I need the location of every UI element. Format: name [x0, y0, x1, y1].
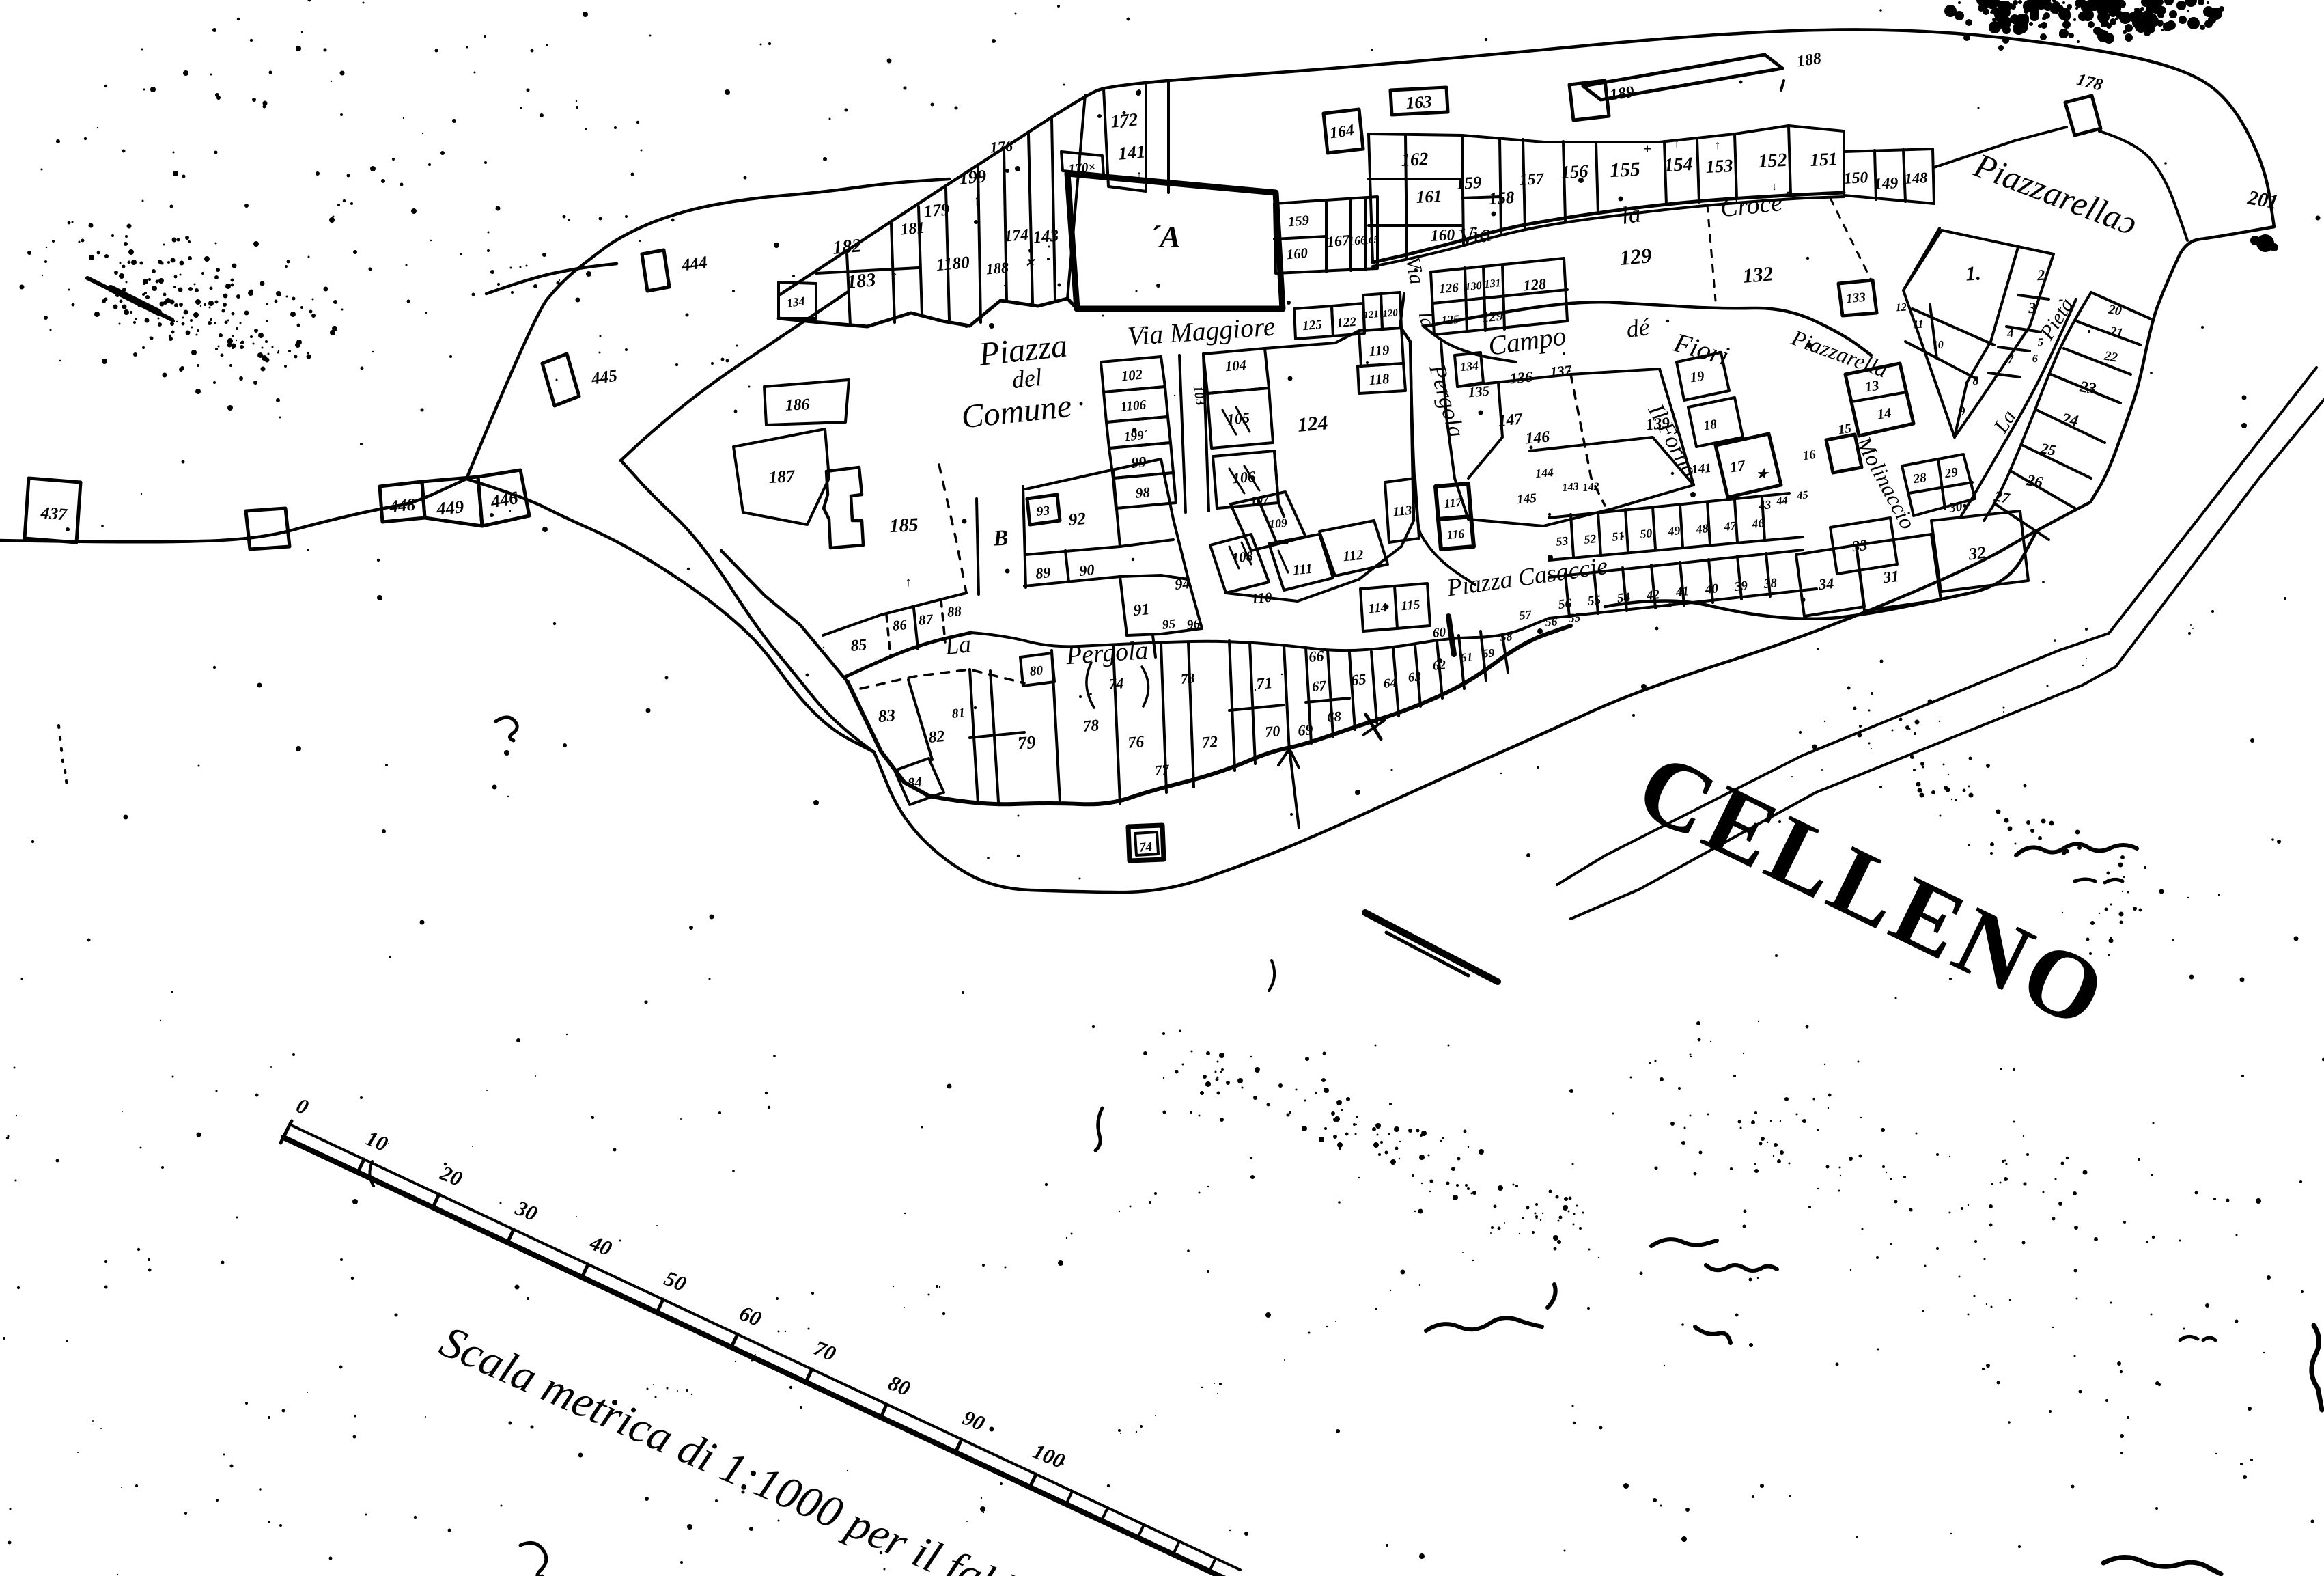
svg-text:162: 162: [1401, 148, 1429, 170]
svg-text:66: 66: [1308, 647, 1325, 665]
svg-text:59: 59: [1482, 646, 1496, 660]
svg-text:15: 15: [1837, 421, 1852, 438]
svg-text:98: 98: [1135, 485, 1151, 501]
svg-text:185: 185: [889, 514, 919, 537]
svg-text:164: 164: [1329, 122, 1356, 143]
svg-text:23: 23: [2077, 378, 2097, 398]
svg-text:129: 129: [1481, 309, 1504, 326]
svg-text:145: 145: [1516, 491, 1537, 507]
svg-text:24: 24: [2060, 410, 2080, 430]
svg-text:128: 128: [1523, 275, 1547, 294]
svg-text:64: 64: [1383, 676, 1397, 691]
svg-text:50: 50: [1640, 526, 1653, 541]
svg-text:la: la: [1620, 199, 1642, 230]
svg-text:26: 26: [2024, 471, 2044, 492]
svg-text:3: 3: [2027, 299, 2036, 317]
svg-text:157: 157: [1519, 170, 1545, 189]
svg-text:74: 74: [1108, 674, 1124, 693]
svg-text:139: 139: [1645, 415, 1671, 434]
svg-text:53: 53: [1556, 534, 1569, 549]
svg-text:136: 136: [1509, 368, 1534, 387]
svg-text:del: del: [1011, 363, 1044, 393]
svg-text:76: 76: [1127, 733, 1145, 752]
svg-text:49: 49: [1667, 523, 1681, 538]
svg-text:71: 71: [1255, 674, 1273, 693]
svg-text:113: 113: [1392, 503, 1413, 519]
svg-text:96: 96: [1186, 617, 1201, 633]
svg-text:8: 8: [1972, 374, 1979, 387]
svg-text:160: 160: [1286, 246, 1308, 263]
svg-text:+: +: [1643, 140, 1652, 157]
svg-text:5: 5: [2037, 335, 2043, 348]
svg-text:161: 161: [1416, 187, 1442, 207]
svg-text:21: 21: [2108, 324, 2125, 340]
svg-text:149: 149: [1873, 174, 1899, 193]
svg-text:159: 159: [1455, 174, 1483, 193]
svg-text:47: 47: [1723, 519, 1738, 534]
svg-text:2: 2: [2036, 266, 2045, 284]
svg-text:14: 14: [1876, 406, 1892, 423]
svg-text:✕: ✕: [1025, 256, 1035, 269]
svg-text:78: 78: [1082, 717, 1100, 736]
svg-text:38: 38: [1763, 576, 1778, 592]
svg-text:91: 91: [1132, 600, 1150, 620]
svg-text:109: 109: [1268, 516, 1287, 531]
svg-text:56: 56: [1558, 596, 1573, 612]
svg-text:153: 153: [1705, 155, 1733, 177]
svg-text:90: 90: [1078, 561, 1095, 579]
svg-text:Via: Via: [1457, 219, 1494, 251]
svg-text:156: 156: [1560, 161, 1589, 182]
svg-text:152: 152: [1758, 150, 1788, 172]
svg-text:116: 116: [1446, 527, 1465, 542]
svg-text:1.: 1.: [1965, 262, 1982, 285]
svg-text:↑: ↑: [973, 194, 980, 208]
svg-text:134: 134: [1459, 359, 1479, 374]
svg-text:22: 22: [2103, 348, 2119, 365]
svg-text:94: 94: [1174, 575, 1190, 593]
svg-text:437: 437: [40, 503, 68, 524]
svg-text:82: 82: [927, 728, 945, 747]
svg-text:41: 41: [1675, 584, 1690, 600]
svg-text:17: 17: [1728, 457, 1746, 476]
svg-text:88: 88: [947, 604, 962, 620]
svg-text:65: 65: [1350, 670, 1367, 689]
svg-text:187: 187: [768, 467, 796, 487]
svg-text:131: 131: [1484, 276, 1502, 290]
svg-text:122: 122: [1336, 315, 1357, 331]
svg-text:188: 188: [1796, 50, 1823, 71]
svg-text:114: 114: [1368, 600, 1388, 616]
svg-text:444: 444: [680, 253, 708, 275]
svg-text:176: 176: [990, 137, 1014, 156]
svg-text:143: 143: [1562, 480, 1580, 494]
svg-text:30•: 30•: [1948, 499, 1968, 516]
svg-text:141: 141: [1117, 141, 1146, 163]
svg-text:69: 69: [1297, 721, 1313, 739]
svg-text:93: 93: [1036, 503, 1050, 519]
svg-text:154: 154: [1664, 154, 1694, 176]
svg-text:20: 20: [2107, 302, 2123, 318]
svg-text:74: 74: [1138, 840, 1153, 855]
svg-text:79: 79: [1017, 732, 1037, 754]
svg-text:73: 73: [1180, 671, 1196, 687]
svg-text:188: 188: [985, 259, 1009, 278]
svg-text:67: 67: [1311, 678, 1328, 695]
svg-text:68: 68: [1326, 709, 1342, 725]
svg-text:4: 4: [2006, 327, 2014, 342]
svg-text:44: 44: [1775, 493, 1788, 508]
svg-text:1180: 1180: [936, 253, 971, 275]
svg-text:150: 150: [1843, 169, 1868, 188]
svg-text:28: 28: [1912, 471, 1927, 487]
svg-text:155: 155: [1610, 158, 1641, 182]
svg-text:132: 132: [1742, 263, 1774, 288]
svg-text:16: 16: [1802, 447, 1817, 464]
svg-text:48: 48: [1695, 521, 1709, 536]
svg-text:87: 87: [918, 612, 934, 628]
svg-text:189: 189: [1609, 83, 1636, 105]
svg-text:34: 34: [1817, 575, 1835, 593]
svg-text:445: 445: [589, 367, 618, 389]
svg-text:51: 51: [1612, 529, 1625, 544]
svg-text:85: 85: [850, 636, 867, 655]
svg-text:B: B: [992, 525, 1009, 551]
svg-text:119: 119: [1369, 343, 1390, 360]
svg-text:La: La: [943, 630, 972, 660]
svg-text:12: 12: [1895, 301, 1907, 314]
svg-text:★: ★: [1756, 467, 1769, 482]
svg-text:104: 104: [1224, 358, 1247, 375]
svg-text:70: 70: [1264, 722, 1280, 741]
svg-text:130: 130: [1465, 279, 1483, 293]
svg-text:9: 9: [1958, 404, 1965, 419]
svg-text:32: 32: [1967, 544, 1987, 564]
svg-text:125: 125: [1440, 312, 1459, 327]
svg-text:10: 10: [1932, 338, 1944, 352]
svg-text:199´: 199´: [1123, 428, 1149, 444]
svg-text:160: 160: [1430, 226, 1455, 245]
svg-text:63: 63: [1408, 669, 1422, 685]
svg-text:43: 43: [1758, 497, 1772, 512]
svg-text:81: 81: [951, 706, 966, 721]
svg-text:137: 137: [1550, 363, 1573, 381]
svg-text:151: 151: [1810, 148, 1838, 170]
svg-text:62: 62: [1432, 658, 1446, 674]
svg-text:107: 107: [1250, 493, 1270, 508]
svg-text:55: 55: [1587, 593, 1602, 609]
svg-text:18: 18: [1703, 417, 1718, 434]
svg-text:449: 449: [435, 496, 464, 519]
svg-text:84: 84: [907, 775, 923, 791]
svg-text:52: 52: [1584, 531, 1597, 547]
svg-text:121: 121: [1363, 309, 1380, 321]
svg-text:125: 125: [1302, 318, 1323, 333]
svg-text:80: 80: [1029, 663, 1044, 679]
svg-text:126: 126: [1438, 281, 1459, 296]
svg-text:1106: 1106: [1120, 398, 1147, 414]
svg-text:89: 89: [1035, 564, 1051, 582]
svg-text:199: 199: [958, 165, 987, 188]
svg-text:111: 111: [1292, 562, 1313, 578]
svg-text:83: 83: [878, 706, 896, 726]
svg-text:19: 19: [1689, 369, 1705, 386]
svg-text:133: 133: [1845, 290, 1866, 306]
svg-text:31: 31: [1881, 568, 1900, 587]
svg-text:172: 172: [1110, 109, 1138, 131]
svg-text:186: 186: [785, 396, 810, 415]
svg-text:159: 159: [1287, 213, 1310, 230]
svg-text:55: 55: [1568, 610, 1582, 624]
svg-text:142: 142: [1582, 480, 1600, 494]
svg-text:148: 148: [1904, 169, 1928, 187]
svg-text:181: 181: [900, 219, 926, 239]
svg-text:118: 118: [1369, 372, 1390, 389]
svg-text:183: 183: [846, 269, 877, 293]
svg-text:72: 72: [1201, 733, 1218, 752]
svg-text:120: 120: [1382, 307, 1399, 320]
svg-text:158: 158: [1488, 189, 1515, 208]
svg-text:134: 134: [786, 294, 806, 310]
svg-text:39: 39: [1733, 579, 1749, 594]
svg-text:182: 182: [832, 235, 863, 259]
svg-text:↑: ↑: [891, 269, 898, 284]
svg-text:174: 174: [1004, 226, 1030, 246]
svg-text:147: 147: [1498, 410, 1524, 430]
svg-text:86: 86: [892, 618, 908, 634]
svg-text:448: 448: [388, 495, 416, 516]
svg-text:95: 95: [1162, 617, 1176, 633]
svg-text:57: 57: [1519, 607, 1533, 622]
svg-text:179: 179: [923, 200, 950, 221]
svg-text:40: 40: [1704, 581, 1720, 597]
svg-text:29: 29: [1943, 465, 1959, 482]
svg-text:102: 102: [1121, 368, 1143, 385]
svg-text:61: 61: [1460, 650, 1473, 664]
svg-text:↑: ↑: [1715, 138, 1721, 152]
svg-text:58: 58: [1500, 629, 1513, 644]
svg-text:144: 144: [1535, 465, 1554, 480]
svg-text:135: 135: [1468, 384, 1490, 401]
svg-text:46: 46: [1751, 516, 1765, 531]
svg-text:45: 45: [1795, 488, 1808, 502]
svg-text:124: 124: [1297, 412, 1329, 437]
svg-text:129: 129: [1619, 243, 1652, 270]
svg-text:↑: ↑: [905, 575, 912, 590]
svg-text:Pergola: Pergola: [1065, 636, 1149, 670]
svg-text:143: 143: [1032, 226, 1059, 247]
svg-text:141: 141: [1691, 461, 1712, 477]
svg-text:163: 163: [1405, 93, 1432, 113]
svg-text:110: 110: [1251, 590, 1273, 607]
svg-text:146: 146: [1525, 428, 1551, 448]
svg-text:115: 115: [1401, 598, 1421, 613]
svg-text:92: 92: [1068, 510, 1087, 529]
svg-text:56: 56: [1545, 614, 1558, 628]
svg-text:11: 11: [1913, 318, 1924, 331]
svg-text:´A: ´A: [1149, 219, 1181, 254]
svg-text:↑: ↑: [1002, 280, 1009, 294]
svg-text:↑: ↑: [1674, 136, 1680, 150]
svg-text:112: 112: [1343, 548, 1364, 565]
svg-text:25: 25: [2039, 439, 2057, 459]
svg-text:77: 77: [1154, 762, 1171, 779]
